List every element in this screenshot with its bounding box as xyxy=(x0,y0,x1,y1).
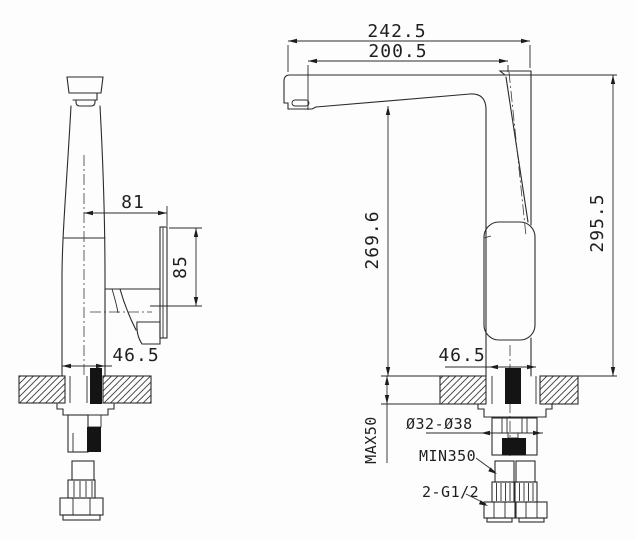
side-nut-cap-left xyxy=(487,518,512,522)
front-deck-right xyxy=(103,376,151,403)
front-hose-ribs xyxy=(74,481,92,497)
side-mount-stud-upper xyxy=(505,368,521,404)
front-spout-cap xyxy=(67,77,103,93)
dim-spout-height: 269.6 xyxy=(362,210,383,269)
dim-deck-thickness: MAX50 xyxy=(362,416,380,464)
front-hex-nut xyxy=(60,498,103,515)
front-deck-left xyxy=(19,376,65,403)
front-hub-inner-curve xyxy=(112,289,118,313)
front-mount-stud-upper xyxy=(90,368,102,404)
side-mount-stud-lower xyxy=(502,438,526,455)
side-spout-top xyxy=(284,75,531,81)
front-spout-shoulder xyxy=(73,93,97,100)
side-aerator-outlet xyxy=(292,100,309,106)
side-spout-underside xyxy=(316,94,470,107)
dim-base-width-front: 46.5 xyxy=(112,345,159,366)
front-mount-flange xyxy=(57,404,114,415)
front-handle-plate xyxy=(160,227,167,338)
dim-hole-diameter: Ø32-Ø38 xyxy=(406,415,473,433)
side-view-dimensions: 242.5 200.5 269.6 295.5 46.5 MAX50 Ø xyxy=(288,21,615,506)
front-body-right-edge xyxy=(100,106,105,376)
technical-drawing-canvas: 81 85 46.5 xyxy=(0,0,636,539)
front-view-dimensions: 81 85 46.5 xyxy=(62,192,202,368)
dim-handle-length: 85 xyxy=(170,255,191,279)
front-spout-tip xyxy=(76,100,95,106)
side-mount-flange xyxy=(478,404,552,417)
side-hose-left-ribbed xyxy=(492,482,514,502)
front-mount-stud-lower xyxy=(87,427,101,452)
front-hose-ribbed xyxy=(68,480,95,498)
side-hose-right-ribbed xyxy=(515,482,537,502)
side-deck-right xyxy=(540,376,578,404)
side-cartridge xyxy=(502,418,527,433)
side-hose-left-top xyxy=(495,461,514,482)
front-nut-cap xyxy=(63,515,100,520)
side-deck-left xyxy=(440,376,486,404)
side-cartridge-neck xyxy=(508,433,518,438)
dim-thread-spec: 2-G1/2 xyxy=(422,483,479,501)
front-hub-curve xyxy=(120,289,136,330)
dim-hose-length: MIN350 xyxy=(419,447,476,465)
faucet-dimension-drawing: 81 85 46.5 xyxy=(0,0,636,539)
side-hex-nut-right xyxy=(516,502,547,518)
dim-spout-reach: 200.5 xyxy=(368,41,427,62)
side-handle-grip xyxy=(484,222,535,340)
front-hose-top xyxy=(72,461,94,480)
dim-overall-height: 295.5 xyxy=(587,193,608,252)
dim-handle-offset: 81 xyxy=(121,192,145,213)
side-inner-corner xyxy=(470,94,486,108)
side-handle-notch xyxy=(484,236,491,238)
front-view-faucet xyxy=(19,77,167,520)
front-shank-tube xyxy=(68,415,88,452)
side-aerator-housing xyxy=(284,97,316,109)
dim-overall-reach: 242.5 xyxy=(367,21,426,42)
front-body-left-edge xyxy=(62,106,71,376)
side-hex-nut-left xyxy=(484,502,515,518)
front-stud-collar xyxy=(88,415,101,427)
side-nut-cap-right xyxy=(519,518,544,522)
side-handle-centerline xyxy=(509,72,526,236)
dim-base-width-side: 46.5 xyxy=(438,345,485,366)
side-hose-right-top xyxy=(516,461,535,482)
front-hub-foot xyxy=(137,322,160,344)
